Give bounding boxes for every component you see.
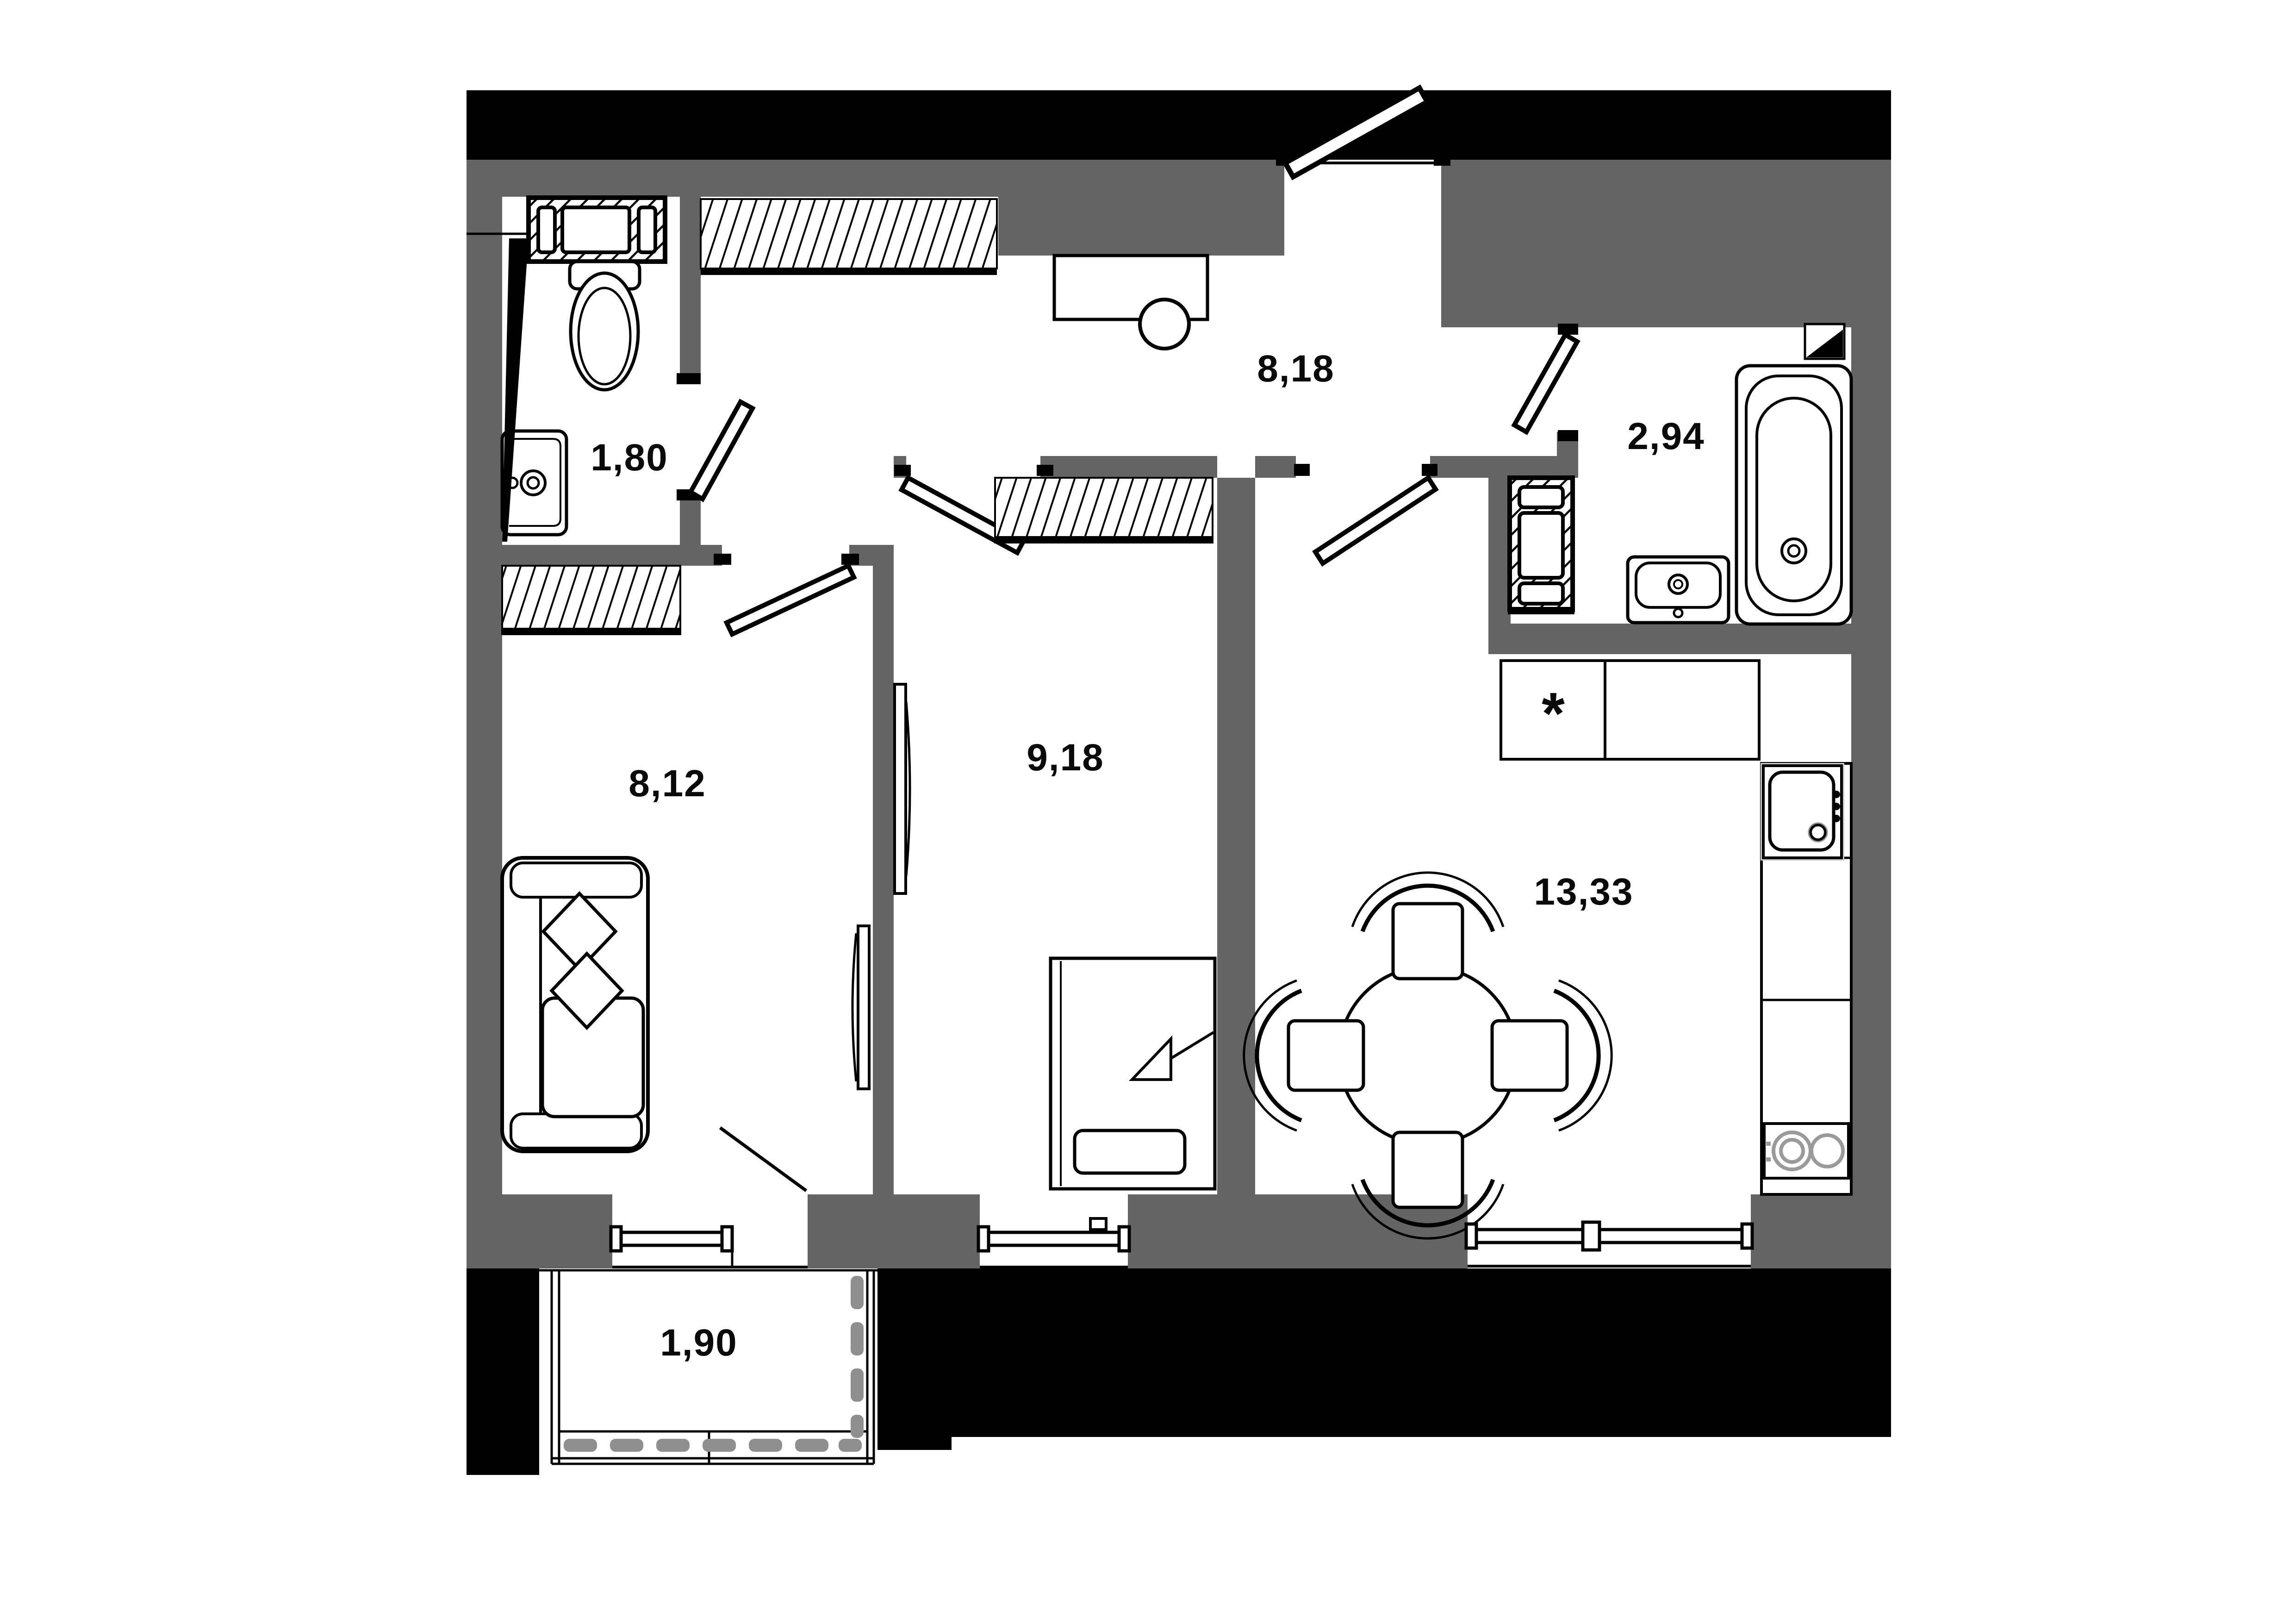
room-balcony: 1,90	[539, 1270, 877, 1464]
stove-icon	[1764, 1124, 1848, 1178]
kitchen-window	[1466, 1222, 1752, 1266]
floor-plan-page: 1,80 8,18	[0, 0, 2296, 1624]
kitchen-area-label: 13,33	[1534, 871, 1633, 913]
room-bedroom: 9,18	[894, 465, 1215, 1189]
balcony-door-leaf	[720, 1128, 806, 1191]
dining-table-icon	[1244, 873, 1612, 1238]
corner-shelf-icon	[1805, 324, 1844, 359]
kitchen-sink-icon	[1763, 766, 1842, 858]
living-door	[714, 554, 859, 634]
bedroom-area-label: 9,18	[1027, 737, 1104, 779]
washing-machine-icon	[1508, 478, 1574, 614]
bedroom-wardrobe-icon	[995, 478, 1213, 543]
living-area-label: 8,12	[628, 762, 706, 805]
bedroom-tv-icon	[895, 684, 910, 893]
balcony-glazing	[552, 1270, 874, 1464]
wc-door-leaf	[691, 402, 753, 499]
bathtub-icon	[1736, 366, 1851, 624]
bathroom-door-leaf	[1514, 335, 1577, 432]
bedroom-window	[978, 1218, 1129, 1267]
console-mirror-icon	[1054, 256, 1207, 349]
living-wardrobe-icon	[502, 566, 680, 635]
hallway-wardrobe-icon	[701, 199, 997, 275]
fridge-star-marker: *	[1542, 681, 1565, 747]
kitchen-door	[1294, 464, 1437, 563]
balcony-area-label: 1,90	[660, 1322, 738, 1364]
hallway-area-label: 8,18	[1257, 348, 1335, 390]
wc-door	[677, 373, 753, 500]
sofa-icon	[502, 858, 648, 1151]
floor-plan: 1,80 8,18	[0, 0, 2296, 1624]
wc-area-label: 1,80	[591, 437, 668, 479]
living-tv-icon	[852, 926, 869, 1089]
room-living: 8,12	[502, 554, 869, 1191]
toilet-icon	[529, 198, 665, 390]
living-window	[611, 1227, 808, 1267]
bathroom-area-label: 2,94	[1627, 415, 1705, 457]
balcony-railing-dashes	[564, 1276, 864, 1452]
living-door-leaf	[727, 566, 854, 634]
kitchen-counters: *	[1501, 661, 1851, 1194]
bed-icon	[1051, 958, 1215, 1189]
kitchen-door-leaf	[1315, 478, 1436, 563]
bathroom-door	[1514, 324, 1578, 441]
bathroom-sink-icon	[1628, 557, 1729, 623]
